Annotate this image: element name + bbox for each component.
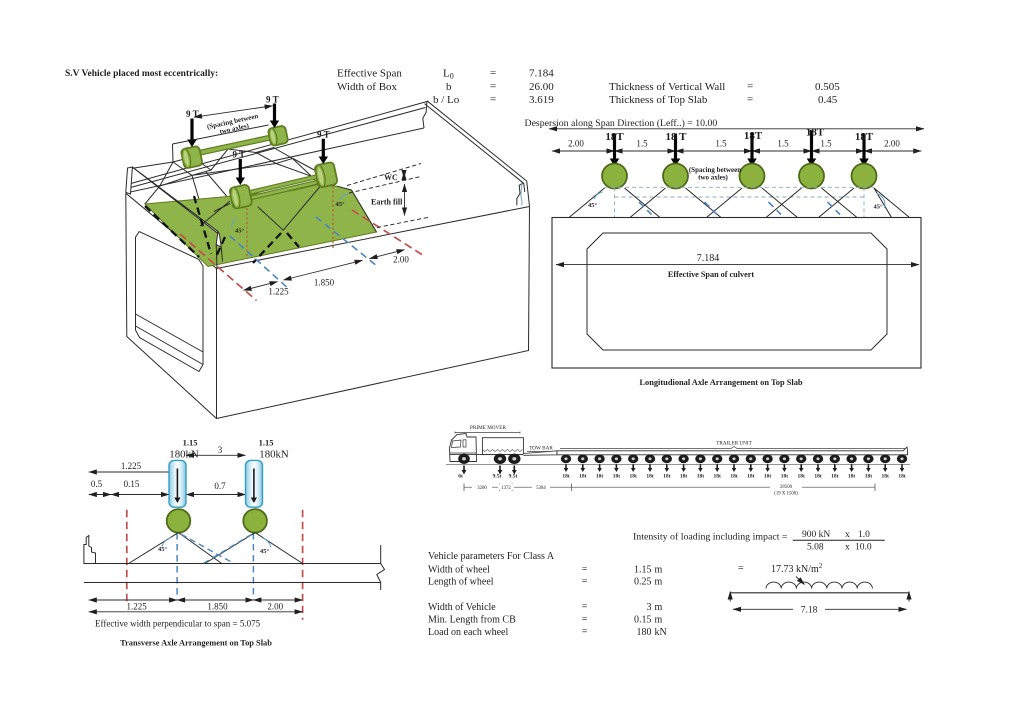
svg-text:18T: 18T: [806, 127, 825, 139]
svg-text:18t: 18t: [714, 474, 722, 480]
svg-text:TRAILER UNIT: TRAILER UNIT: [716, 441, 752, 447]
svg-text:18t: 18t: [663, 474, 671, 480]
svg-text:18T: 18T: [855, 131, 874, 143]
svg-text:18t: 18t: [865, 474, 873, 480]
svg-text:Width of Vehicle: Width of Vehicle: [428, 602, 496, 613]
svg-text:m: m: [655, 565, 663, 576]
svg-text:=: =: [582, 576, 588, 587]
svg-text:18t: 18t: [882, 474, 890, 480]
svg-text:18t: 18t: [730, 474, 738, 480]
svg-text:=: =: [582, 564, 588, 575]
svg-text:18t: 18t: [562, 474, 570, 480]
svg-text:18T: 18T: [605, 131, 624, 143]
svg-text:18t: 18t: [680, 474, 688, 480]
svg-text:m: m: [655, 602, 663, 613]
svg-text:kN: kN: [655, 627, 667, 638]
svg-text:5.08: 5.08: [807, 543, 824, 553]
svg-text:2.00: 2.00: [568, 139, 584, 149]
svg-text:18t: 18t: [848, 474, 856, 480]
svg-text:45°: 45°: [158, 546, 168, 553]
svg-text:PRIME MOVER: PRIME MOVER: [470, 425, 506, 431]
svg-text:18t: 18t: [646, 474, 654, 480]
svg-text:18T: 18T: [744, 130, 763, 142]
svg-text:18t: 18t: [613, 474, 621, 480]
svg-text:m: m: [655, 577, 663, 588]
svg-text:18t: 18t: [814, 474, 822, 480]
svg-text:1.225: 1.225: [121, 461, 142, 471]
svg-text:9.5t: 9.5t: [493, 474, 502, 480]
svg-text:3: 3: [647, 602, 652, 613]
svg-text:18t: 18t: [579, 474, 587, 480]
svg-text:5384: 5384: [536, 486, 546, 491]
svg-text:x: x: [845, 543, 850, 553]
svg-text:=: =: [490, 94, 496, 106]
svg-text:7.18: 7.18: [801, 606, 818, 616]
svg-text:1372: 1372: [501, 486, 511, 491]
svg-text:2.00: 2.00: [267, 602, 283, 612]
svg-text:18t: 18t: [898, 474, 906, 480]
svg-text:WC: WC: [384, 173, 398, 182]
svg-text:1.5: 1.5: [715, 139, 727, 149]
svg-text:9 T: 9 T: [266, 95, 279, 105]
svg-text:1.5: 1.5: [777, 139, 789, 149]
svg-text:0.15: 0.15: [634, 615, 652, 626]
svg-text:b / Lo: b / Lo: [433, 94, 460, 106]
svg-text:900 kN: 900 kN: [802, 530, 830, 540]
svg-text:7.184: 7.184: [697, 253, 720, 264]
svg-text:28500: 28500: [780, 485, 793, 490]
svg-text:1.15: 1.15: [259, 438, 274, 448]
svg-text:=: =: [747, 81, 753, 93]
svg-text:180kN: 180kN: [259, 449, 289, 461]
svg-text:S.V Vehicle placed most eccent: S.V Vehicle placed most eccentrically:: [65, 69, 218, 79]
svg-text:3.619: 3.619: [529, 94, 554, 106]
svg-text:180: 180: [637, 627, 652, 638]
svg-text:9.5t: 9.5t: [509, 474, 518, 480]
svg-text:18t: 18t: [630, 474, 638, 480]
svg-text:b: b: [446, 81, 452, 93]
svg-text:7.184: 7.184: [529, 68, 554, 80]
svg-text:18t: 18t: [764, 474, 772, 480]
svg-text:18t: 18t: [831, 474, 839, 480]
svg-text:two axles): two axles): [698, 174, 728, 182]
svg-text:=: =: [738, 563, 744, 574]
svg-text:=: =: [582, 602, 588, 613]
svg-text:x: x: [845, 530, 850, 540]
svg-text:1.15: 1.15: [183, 438, 198, 448]
svg-text:18t: 18t: [747, 474, 755, 480]
svg-text:1.850: 1.850: [314, 278, 335, 288]
svg-text:18t: 18t: [697, 474, 705, 480]
svg-text:45°: 45°: [235, 228, 245, 235]
svg-text:Longitudional Axle Arrangement: Longitudional Axle Arrangement on Top Sl…: [639, 378, 802, 387]
svg-text:Load on each wheel: Load on each wheel: [428, 627, 508, 638]
svg-text:m: m: [655, 615, 663, 626]
svg-text:10.0: 10.0: [855, 543, 872, 553]
svg-text:Intensity of loading including: Intensity of loading including impact =: [633, 532, 788, 543]
svg-text:1.5: 1.5: [820, 139, 832, 149]
svg-text:18t: 18t: [781, 474, 789, 480]
svg-text:Effective Span: Effective Span: [337, 68, 402, 80]
svg-text:1.225: 1.225: [126, 602, 147, 612]
svg-text:Effective Span of culvert: Effective Span of culvert: [668, 270, 754, 279]
svg-text:Length of wheel: Length of wheel: [428, 577, 494, 588]
svg-text:=: =: [582, 627, 588, 638]
svg-text:1.0: 1.0: [858, 530, 870, 540]
svg-text:18t: 18t: [798, 474, 806, 480]
svg-text:45°: 45°: [260, 548, 270, 555]
svg-text:2.00: 2.00: [393, 255, 409, 265]
svg-text:9 T: 9 T: [317, 129, 330, 139]
svg-text:0.15: 0.15: [124, 479, 140, 489]
svg-text:0.5: 0.5: [91, 479, 103, 489]
svg-text:Transverse Axle Arrangement on: Transverse Axle Arrangement on Top Slab: [120, 639, 272, 648]
svg-text:=: =: [490, 67, 496, 79]
svg-text:1.850: 1.850: [207, 602, 228, 612]
svg-text:45°: 45°: [588, 202, 598, 209]
svg-text:Width of wheel: Width of wheel: [428, 565, 490, 576]
svg-text:17.73 kN/m2: 17.73 kN/m2: [771, 562, 823, 575]
svg-text:45°: 45°: [336, 201, 346, 208]
svg-text:Earth fill: Earth fill: [371, 198, 403, 207]
svg-text:9 T: 9 T: [186, 109, 199, 119]
svg-text:Min. Length from CB: Min. Length from CB: [428, 615, 516, 626]
svg-text:Despersion along Span Directio: Despersion along Span Direction (Leff..)…: [525, 118, 718, 129]
svg-text:TOW BAR: TOW BAR: [529, 446, 553, 452]
svg-text:1.5: 1.5: [636, 139, 648, 149]
svg-text:45°: 45°: [874, 204, 884, 211]
svg-text:=: =: [582, 614, 588, 625]
svg-text:1.225: 1.225: [268, 287, 289, 297]
svg-text:(19 X 1500): (19 X 1500): [774, 492, 798, 497]
svg-text:180kN: 180kN: [169, 449, 199, 461]
svg-text:18t: 18t: [596, 474, 604, 480]
svg-text:0.7: 0.7: [214, 481, 226, 491]
svg-text:0.45: 0.45: [818, 94, 838, 106]
svg-text:9 T: 9 T: [233, 150, 246, 160]
svg-text:6t: 6t: [458, 474, 463, 480]
svg-text:26.00: 26.00: [529, 81, 554, 93]
svg-text:18 T: 18 T: [666, 131, 688, 143]
svg-text:=: =: [747, 94, 753, 106]
svg-text:=: =: [490, 81, 496, 93]
svg-text:2.00: 2.00: [884, 139, 900, 149]
svg-text:Thickness of Top Slab: Thickness of Top Slab: [609, 94, 708, 106]
svg-text:0.25: 0.25: [634, 577, 652, 588]
svg-text:0.505: 0.505: [815, 81, 840, 93]
svg-text:Effective width perpendicular: Effective width perpendicular to span = …: [95, 619, 261, 629]
svg-text:Thickness of Vertical Wall: Thickness of Vertical Wall: [609, 81, 725, 93]
svg-text:Vehicle parameters For Class A: Vehicle parameters For Class A: [428, 551, 555, 562]
svg-text:1.15: 1.15: [634, 565, 652, 576]
svg-text:Width of Box: Width of Box: [337, 81, 398, 93]
svg-text:3200: 3200: [477, 486, 487, 491]
svg-text:3: 3: [218, 445, 223, 455]
